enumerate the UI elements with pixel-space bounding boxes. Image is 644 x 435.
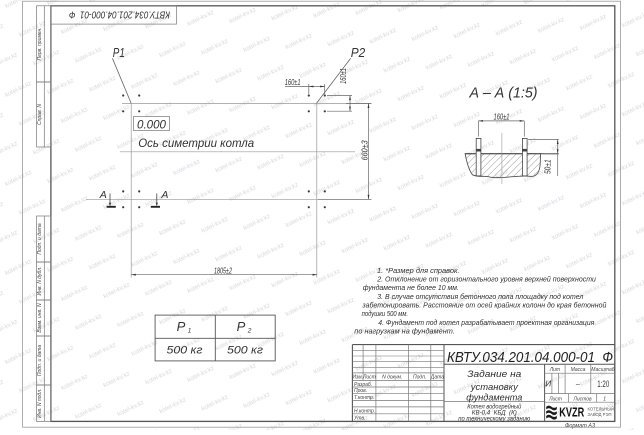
svg-text:Н.контр.: Н.контр. <box>354 409 375 415</box>
svg-text:Задание на: Задание на <box>467 369 521 380</box>
svg-text:Листов: Листов <box>572 397 592 403</box>
svg-text:Ось симетрии котла: Ось симетрии котла <box>138 136 254 150</box>
svg-text:Дата: Дата <box>430 375 444 381</box>
svg-text:Пров.: Пров. <box>354 388 367 394</box>
svg-text:Перв. примен.: Перв. примен. <box>37 27 43 60</box>
svg-text:по техническому заданию: по техническому заданию <box>458 416 530 423</box>
svg-text:Утв.: Утв. <box>354 415 365 421</box>
svg-text:Разраб.: Разраб. <box>354 382 372 388</box>
svg-text:660±3: 660±3 <box>360 140 370 160</box>
svg-text:50±1: 50±1 <box>544 159 553 174</box>
svg-text:ЗАВОД РЭП: ЗАВОД РЭП <box>588 412 612 417</box>
svg-text:1: 1 <box>188 328 192 335</box>
svg-text:N докум.: N докум. <box>382 375 402 381</box>
svg-text:P2: P2 <box>351 46 366 60</box>
svg-text:А: А <box>160 189 168 201</box>
svg-text:1:20: 1:20 <box>597 379 609 389</box>
svg-text:500 кг: 500 кг <box>167 344 204 356</box>
svg-text:2: 2 <box>247 328 252 335</box>
svg-text:Подп. и дата: Подп. и дата <box>37 345 43 377</box>
svg-text:–: – <box>575 381 580 388</box>
svg-text:подушки 500 мм.: подушки 500 мм. <box>362 309 408 318</box>
svg-text:А: А <box>99 189 107 201</box>
svg-text:Масса: Масса <box>571 367 586 373</box>
svg-text:Т.контр.: Т.контр. <box>354 395 374 401</box>
svg-text:по нагрузкам на фундамент.: по нагрузкам на фундамент. <box>354 327 455 336</box>
svg-text:1805±2: 1805±2 <box>214 266 232 275</box>
svg-text:Взам. инв. N: Взам. инв. N <box>37 303 43 333</box>
svg-text:Масштаб: Масштаб <box>591 367 615 373</box>
svg-text:Инв. N дубл.: Инв. N дубл. <box>37 267 43 296</box>
svg-text:160±1: 160±1 <box>339 68 348 84</box>
svg-text:И: И <box>545 379 551 389</box>
svg-text:Лист: Лист <box>548 397 562 403</box>
svg-text:Инв. N подл.: Инв. N подл. <box>37 389 43 418</box>
svg-text:Подп.: Подп. <box>413 375 426 381</box>
svg-text:фундамента не более 10 мм.: фундамента не более 10 мм. <box>363 283 459 292</box>
svg-text:А – А (1:5): А – А (1:5) <box>469 84 538 101</box>
svg-text:Подп. и дата: Подп. и дата <box>37 223 43 255</box>
svg-text:фундамента: фундамента <box>466 392 522 403</box>
svg-text:КОТЕЛЬНЫЙ: КОТЕЛЬНЫЙ <box>588 407 615 412</box>
svg-text:KVZR: KVZR <box>559 406 584 420</box>
svg-text:160±1: 160±1 <box>285 78 301 87</box>
svg-text:Лист: Лист <box>362 375 376 381</box>
svg-text:Лит: Лит <box>549 367 560 373</box>
svg-text:500 кг: 500 кг <box>227 344 264 356</box>
svg-text:P: P <box>177 319 186 334</box>
svg-text:P1: P1 <box>113 46 125 60</box>
svg-text:Справ. N: Справ. N <box>37 104 43 125</box>
svg-text:1: 1 <box>603 397 606 403</box>
svg-text:0.000: 0.000 <box>137 117 166 131</box>
svg-text:160±1: 160±1 <box>494 112 510 121</box>
svg-text:КВТУ.034.201.04.000-01 Ф: КВТУ.034.201.04.000-01 Ф <box>69 9 170 20</box>
svg-text:КВТУ.034.201.04.000-01 Ф: КВТУ.034.201.04.000-01 Ф <box>447 350 613 366</box>
svg-text:P: P <box>237 319 246 334</box>
svg-text:Изм.: Изм. <box>352 375 363 381</box>
svg-text:Формат А3: Формат А3 <box>565 423 596 429</box>
